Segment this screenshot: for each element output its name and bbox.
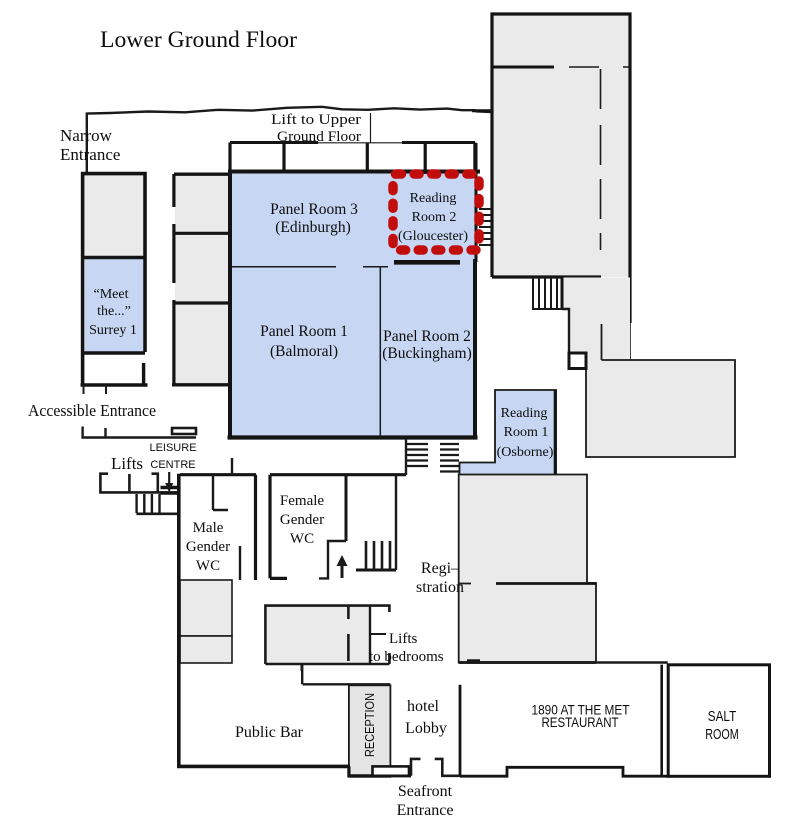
svg-text:the...”: the...” [97, 304, 131, 319]
svg-text:stration: stration [416, 579, 464, 596]
svg-text:Surrey 1: Surrey 1 [89, 323, 137, 338]
svg-text:Entrance: Entrance [397, 802, 454, 819]
svg-text:Panel Room 1: Panel Room 1 [260, 323, 348, 340]
svg-text:Regi–: Regi– [421, 560, 460, 577]
svg-text:to bedrooms: to bedrooms [369, 649, 444, 665]
svg-text:Room 1: Room 1 [504, 425, 549, 440]
svg-text:(Edinburgh): (Edinburgh) [275, 219, 350, 236]
svg-text:SALT: SALT [708, 709, 737, 725]
svg-text:Male: Male [193, 520, 224, 536]
svg-text:Lift to Upper: Lift to Upper [271, 112, 361, 128]
svg-text:Gender: Gender [280, 512, 324, 528]
svg-text:Narrow: Narrow [60, 126, 113, 145]
svg-text:Seafront: Seafront [398, 783, 453, 800]
svg-text:Room 2: Room 2 [412, 210, 457, 225]
svg-text:Lobby: Lobby [405, 720, 447, 737]
svg-text:(Balmoral): (Balmoral) [270, 343, 338, 360]
svg-text:Reading: Reading [410, 191, 457, 206]
svg-text:Lifts: Lifts [389, 631, 417, 647]
svg-text:LEISURE: LEISURE [149, 442, 196, 454]
svg-text:RECEPTION: RECEPTION [363, 693, 377, 757]
svg-text:“Meet: “Meet [94, 287, 129, 302]
svg-text:(Gloucester): (Gloucester) [398, 229, 468, 244]
svg-text:RESTAURANT: RESTAURANT [542, 714, 619, 730]
svg-text:(Osborne): (Osborne) [497, 445, 554, 460]
svg-text:Reading: Reading [501, 406, 548, 421]
svg-text:Panel Room 3: Panel Room 3 [270, 201, 358, 218]
svg-text:WC: WC [290, 531, 314, 547]
svg-text:Public Bar: Public Bar [235, 724, 304, 741]
svg-text:CENTRE: CENTRE [150, 459, 195, 471]
svg-text:ROOM: ROOM [705, 727, 739, 743]
svg-text:Gender: Gender [186, 539, 230, 555]
svg-text:Entrance: Entrance [60, 145, 120, 164]
svg-text:(Buckingham): (Buckingham) [382, 345, 472, 362]
svg-text:Lifts: Lifts [111, 454, 143, 473]
svg-text:Accessible Entrance: Accessible Entrance [28, 401, 156, 420]
svg-text:WC: WC [196, 558, 220, 574]
svg-text:Lower Ground Floor: Lower Ground Floor [100, 27, 297, 53]
svg-text:hotel: hotel [407, 698, 440, 715]
svg-text:Panel Room 2: Panel Room 2 [383, 328, 471, 345]
svg-text:Ground Floor: Ground Floor [277, 129, 361, 145]
svg-text:Female: Female [280, 493, 324, 509]
